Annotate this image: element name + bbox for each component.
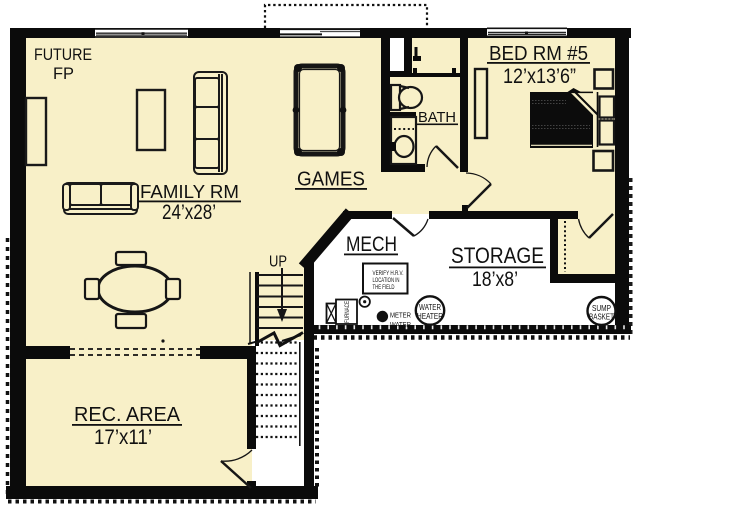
svg-text:METER: METER	[390, 311, 411, 320]
svg-text:FP: FP	[53, 64, 74, 83]
svg-text:FUTURE: FUTURE	[34, 45, 92, 64]
svg-text:24’x28’: 24’x28’	[162, 201, 216, 224]
svg-text:18’x8’: 18’x8’	[472, 268, 518, 291]
svg-text:THE FIELD: THE FIELD	[373, 285, 395, 291]
svg-text:VERIFY H.R.V.: VERIFY H.R.V.	[373, 271, 404, 277]
svg-text:GAMES: GAMES	[297, 169, 365, 191]
svg-text:LOCATION IN: LOCATION IN	[373, 278, 400, 284]
svg-text:REC. AREA: REC. AREA	[74, 404, 181, 426]
svg-text:HEATER: HEATER	[417, 311, 443, 321]
svg-text:MECH: MECH	[346, 233, 397, 256]
svg-text:WATER: WATER	[390, 320, 411, 329]
svg-text:FURNACE: FURNACE	[344, 301, 351, 323]
svg-text:17’x11’: 17’x11’	[94, 426, 152, 449]
svg-text:BED RM #5: BED RM #5	[489, 43, 588, 65]
svg-text:BASKET: BASKET	[589, 312, 614, 322]
svg-text:STORAGE: STORAGE	[451, 243, 544, 268]
svg-text:UP: UP	[269, 254, 287, 271]
svg-text:FAMILY RM: FAMILY RM	[140, 182, 239, 202]
svg-text:12’x13’6”: 12’x13’6”	[503, 65, 576, 88]
